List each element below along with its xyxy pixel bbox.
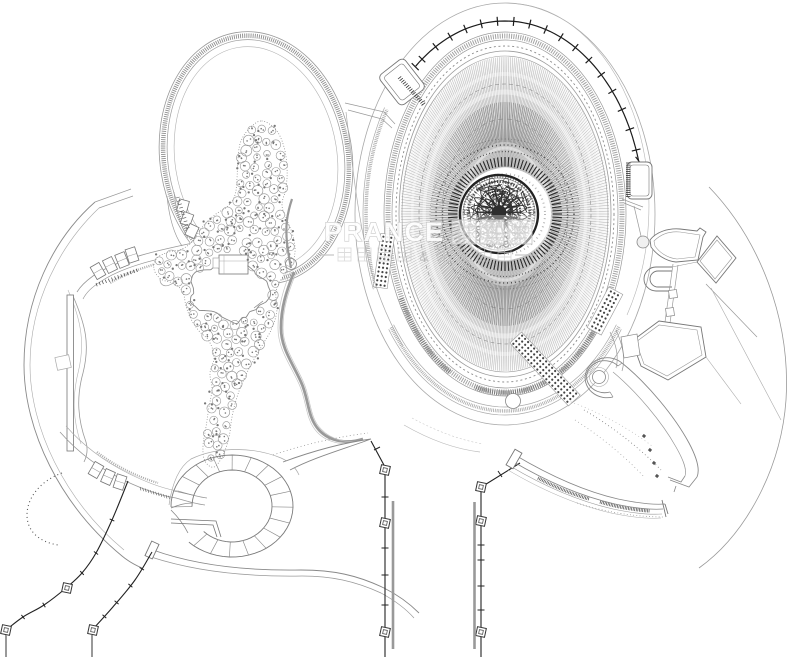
svg-text:&: & [419, 248, 429, 264]
svg-text:PRANCE: PRANCE [324, 217, 444, 247]
